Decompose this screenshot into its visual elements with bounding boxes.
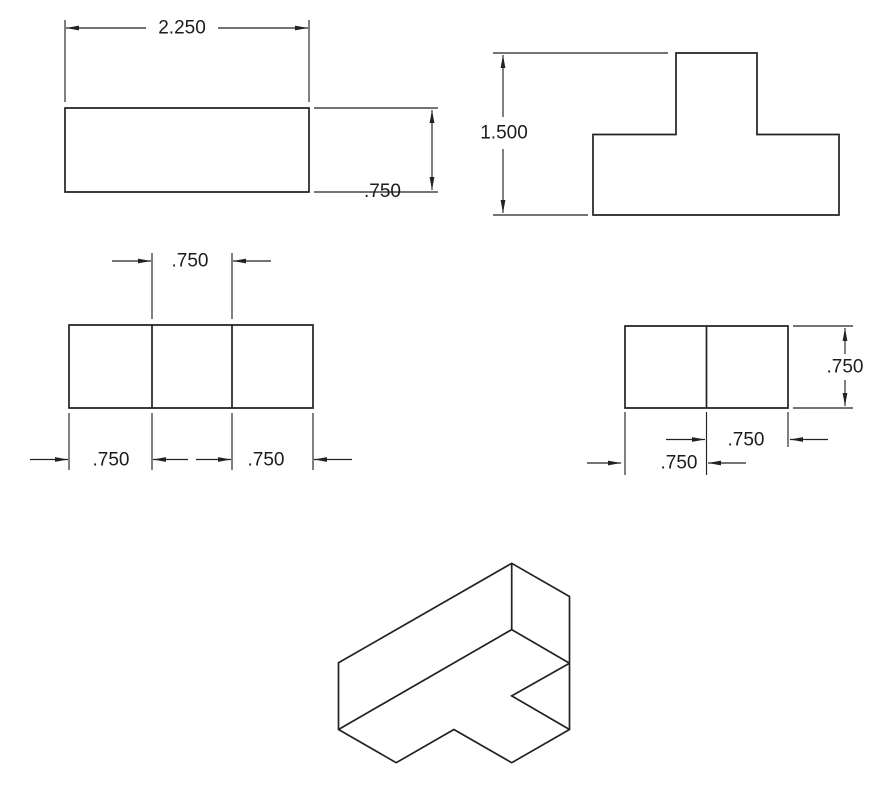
dim-750-side-upper-arrowhead-right-icon (692, 437, 705, 442)
dim-750-side-lower-arrowhead-left-icon (708, 461, 721, 466)
dim-750-side-lower-label: .750 (661, 453, 698, 474)
top-left-rectangle-view-outline (65, 108, 309, 192)
dim-height-1500-arrowhead-down-icon (501, 200, 506, 213)
middle-left-rectangle-view (69, 325, 313, 408)
dim-width-2250: 2.250 (65, 18, 309, 103)
isometric-view (339, 563, 570, 762)
dim-750-side-height-label: .750 (827, 357, 864, 378)
dim-750-bottom-right-segment-label: .750 (248, 450, 285, 471)
dim-width-2250-arrowhead-right-icon (295, 26, 308, 31)
dim-750-middle-top-arrowhead-left-icon (233, 259, 246, 264)
dim-750-side-upper-arrowhead-left-icon (790, 437, 803, 442)
dim-750-bottom-left-segment-arrowhead-left-icon (153, 457, 166, 462)
dim-750-bottom-right-segment-arrowhead-right-icon (218, 457, 231, 462)
dim-750-bottom-right-segment: .750 (196, 413, 352, 471)
dim-750-middle-top: .750 (112, 251, 271, 320)
top-left-rectangle-view (65, 108, 309, 192)
dim-height-750-top-view-arrowhead-up-icon (430, 110, 435, 123)
top-right-t-profile-view-outline (593, 53, 839, 215)
dim-750-bottom-left-segment-arrowhead-right-icon (55, 457, 68, 462)
multiview-drawing: 2.250.7501.500.750.750.750.750.750.750 (0, 0, 877, 806)
isometric-view-edge (339, 563, 512, 729)
isometric-view-edge (512, 630, 570, 664)
dim-750-side-height-arrowhead-down-icon (843, 393, 848, 406)
dim-750-bottom-right-segment-arrowhead-left-icon (314, 457, 327, 462)
dim-height-1500-arrowhead-up-icon (501, 55, 506, 68)
dim-750-side-upper-label: .750 (728, 430, 765, 451)
middle-left-rectangle-view-outline (69, 325, 313, 408)
dim-width-2250-label: 2.250 (158, 18, 206, 39)
middle-right-rectangle-view (625, 326, 788, 408)
dim-height-750-top-view: .750 (314, 108, 438, 202)
dim-height-750-top-view-arrowhead-down-icon (430, 177, 435, 190)
dim-750-side-lower-arrowhead-right-icon (608, 461, 621, 466)
top-right-t-profile-view (593, 53, 839, 215)
dim-750-side-height: .750 (793, 326, 863, 408)
dim-750-middle-top-arrowhead-right-icon (138, 259, 151, 264)
dim-750-side-lower: .750 (587, 412, 746, 475)
technical-drawing-canvas: 2.250.7501.500.750.750.750.750.750.750 (0, 0, 877, 806)
dim-750-bottom-left-segment-label: .750 (93, 450, 130, 471)
dim-height-1500-label: 1.500 (480, 123, 528, 144)
isometric-view-edge (512, 663, 570, 729)
dim-750-bottom-left-segment: .750 (30, 413, 188, 471)
dim-750-middle-top-label: .750 (172, 251, 209, 272)
dim-750-side-height-arrowhead-up-icon (843, 328, 848, 341)
dim-width-2250-arrowhead-left-icon (66, 26, 79, 31)
dim-height-750-top-view-label: .750 (364, 181, 401, 202)
